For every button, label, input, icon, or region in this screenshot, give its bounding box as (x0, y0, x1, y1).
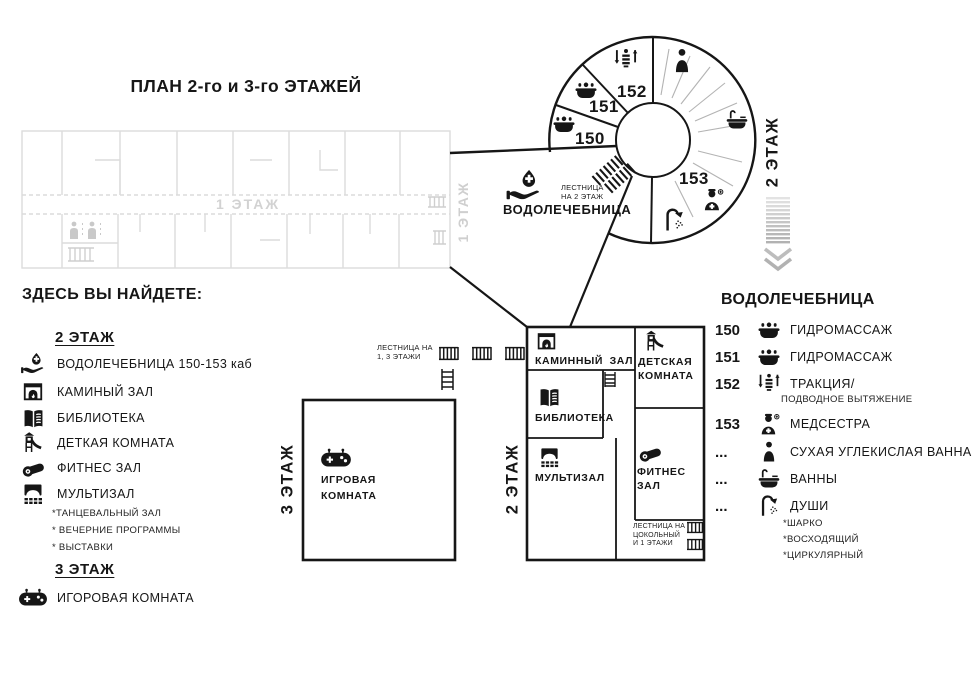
legend-item-kids: ДЕТКАЯ КОМНАТА (18, 431, 174, 455)
stairs13-line1: ЛЕСТНИЦА НА (377, 343, 433, 352)
page-title: ПЛАН 2-го и 3-го ЭТАЖЕЙ (96, 76, 396, 97)
legend-item-label: ВОДОЛЕЧЕБНИЦА 150-153 каб (57, 357, 252, 371)
multihall-label: МУЛЬТИЗАЛ (535, 471, 605, 485)
stairs-note-13: ЛЕСТНИЦА НА 1, 3 ЭТАЖИ (377, 343, 433, 361)
legend-row-153: 153 МЕДСЕСТРА (715, 412, 870, 436)
stairs-icon (439, 347, 524, 390)
legend-row-label: ГИДРОМАССАЖ (790, 350, 893, 364)
legend-left-header: ЗДЕСЬ ВЫ НАЙДЕТЕ: (22, 286, 203, 304)
book-icon (537, 385, 562, 410)
room-number: 151 (715, 349, 748, 366)
bath-icon (754, 466, 784, 492)
screen-icon (538, 446, 561, 469)
legend-right-header: ВОДОЛЕЧЕБНИЦА (721, 291, 875, 309)
floor-plan-poster: ПЛАН 2-го и 3-го ЭТАЖЕЙ 1 ЭТАЖ 1 ЭТАЖ 15… (0, 0, 980, 691)
legend-row-150: 150 ГИДРОМАССАЖ (715, 318, 893, 342)
shower-note: *ЦИРКУЛЯРНЫЙ (783, 550, 863, 561)
hydro-tub-icon (754, 344, 784, 370)
multihall-note: * ВЕЧЕРНИЕ ПРОГРАММЫ (52, 525, 180, 536)
legend-row-151: 151 ГИДРОМАССАЖ (715, 345, 893, 369)
hydro-tub-icon (551, 111, 577, 137)
legend-item-game-room: ИГОРОВАЯ КОМНАТА (18, 586, 194, 610)
floor1-corridor-label: 1 ЭТАЖ (206, 196, 290, 212)
legend-item-label: ДЕТКАЯ КОМНАТА (57, 436, 174, 450)
floor3-side-label: 3 ЭТАЖ (279, 444, 298, 514)
gamepad-icon (18, 587, 48, 609)
library-label: БИБЛИОТЕКА (535, 411, 614, 425)
gamepad-icon (320, 447, 352, 470)
room-number: 152 (715, 376, 748, 393)
ladder-icon (605, 372, 615, 387)
floor1-side-label: 1 ЭТАЖ (455, 181, 471, 242)
legend-row-152: 152 ТРАКЦИЯ/ (715, 372, 855, 396)
legend-row-label: ГИДРОМАССАЖ (790, 323, 893, 337)
stairs-note-2floor: ЛЕСТНИЦА НА 2 ЭТАЖ (561, 183, 604, 201)
mat-icon (637, 440, 664, 467)
room-number-150: 150 (575, 129, 605, 149)
hydrotherapy-label: ВОДОЛЕЧЕБНИЦА (503, 202, 631, 217)
link-line-plan (450, 267, 527, 327)
legend-item-fitness: ФИТНЕС ЗАЛ (18, 456, 141, 480)
stairs13-line2: 1, 3 ЭТАЖИ (377, 352, 433, 361)
floor2-side-label: 2 ЭТАЖ (504, 444, 523, 514)
stairs-note-line2: НА 2 ЭТАЖ (561, 192, 604, 201)
shower-icon (660, 206, 688, 234)
room-number-153: 153 (679, 169, 709, 189)
game-room-line1: ИГРОВАЯ (321, 473, 377, 489)
room-number-152: 152 (617, 82, 647, 102)
screen-icon (18, 482, 48, 506)
fireplace-icon (536, 331, 557, 352)
row-marker: ... (715, 444, 748, 461)
game-room-label: ИГРОВАЯ КОМНАТА (321, 473, 377, 504)
legend-item-label: МУЛЬТИЗАЛ (57, 487, 135, 501)
stairs-note-basement: ЛЕСТНИЦА НА ЦОКОЛЬНЫЙ И 1 ЭТАЖИ (633, 523, 685, 549)
person-icon (668, 46, 696, 76)
legend-row-label: МЕДСЕСТРА (790, 417, 870, 431)
nurse-icon (754, 412, 784, 437)
hydro-tub-icon (573, 77, 599, 103)
legend-row-label: ТРАКЦИЯ/ (790, 377, 855, 391)
hydro-tub-icon (754, 317, 784, 343)
traction-icon (612, 46, 640, 74)
water-hand-icon (18, 351, 48, 377)
fitness-label: ФИТНЕС ЗАЛ (637, 465, 686, 493)
legend-row-label: СУХАЯ УГЛЕКИСЛАЯ ВАННА (790, 445, 972, 459)
slide-icon (643, 329, 667, 354)
stairs-note-line1: ЛЕСТНИЦА (561, 183, 604, 192)
shower-note: *ВОСХОДЯЩИЙ (783, 534, 859, 545)
multihall-note: * ВЫСТАВКИ (52, 542, 113, 553)
kids-room-label: ДЕТСКАЯ КОМНАТА (638, 355, 694, 383)
legend-item-label: ФИТНЕС ЗАЛ (57, 461, 141, 475)
legend-item-label: КАМИНЫЙ ЗАЛ (57, 385, 153, 399)
person-icon (754, 439, 784, 465)
bath-icon (724, 107, 750, 133)
fitness-line2: ЗАЛ (637, 479, 686, 493)
fireplace-hall-label: КАМИННЫЙ ЗАЛ (535, 354, 633, 368)
kids-room-line1: ДЕТСКАЯ (638, 355, 694, 369)
legend-item-hydrotherapy: ВОДОЛЕЧЕБНИЦА 150-153 каб (18, 352, 252, 376)
fitness-line1: ФИТНЕС (637, 465, 686, 479)
nurse-icon (700, 187, 726, 213)
legend-row-baths: ... ВАННЫ (715, 467, 837, 491)
room-number: 153 (715, 416, 748, 433)
book-icon (18, 406, 48, 431)
game-room-line2: КОМНАТА (321, 489, 377, 505)
shower-icon (754, 493, 784, 519)
legend-row-label: ВАННЫ (790, 472, 837, 486)
shower-note: *ШАРКО (783, 518, 823, 529)
stairs-icon (687, 522, 703, 550)
row-marker: ... (715, 471, 748, 488)
legend-floor2-header: 2 ЭТАЖ (55, 329, 114, 346)
fireplace-icon (18, 381, 48, 403)
kids-room-line2: КОМНАТА (638, 369, 694, 383)
stairs-basement-line3: И 1 ЭТАЖИ (633, 540, 685, 549)
room-number: 150 (715, 322, 748, 339)
multihall-note: *ТАНЦЕВАЛЬНЫЙ ЗАЛ (52, 508, 161, 519)
legend-row-dry-bath: ... СУХАЯ УГЛЕКИСЛАЯ ВАННА (715, 440, 972, 464)
legend-item-label: ИГОРОВАЯ КОМНАТА (57, 591, 194, 605)
legend-item-multihall: МУЛЬТИЗАЛ (18, 482, 135, 506)
traction-icon (754, 371, 784, 397)
legend-row-label: ДУШИ (790, 499, 829, 513)
traction-sub-label: ПОДВОДНОЕ ВЫТЯЖЕНИЕ (781, 394, 912, 405)
legend-item-library: БИБЛИОТЕКА (18, 406, 145, 430)
slide-icon (18, 431, 48, 455)
mat-icon (18, 455, 48, 482)
legend-floor3-header: 3 ЭТАЖ (55, 561, 114, 578)
legend-row-showers: ... ДУШИ (715, 494, 829, 518)
stairs-basement-line1: ЛЕСТНИЦА НА (633, 523, 685, 532)
circle-floor-label: 2 ЭТАЖ (764, 117, 783, 187)
legend-item-fireplace: КАМИНЫЙ ЗАЛ (18, 380, 153, 404)
wc-icon (70, 222, 101, 239)
stairs-basement-line2: ЦОКОЛЬНЫЙ (633, 532, 685, 541)
row-marker: ... (715, 498, 748, 515)
down-arrow-icon (765, 197, 791, 269)
circle-inner-wall (616, 103, 690, 177)
water-hand-icon (505, 167, 543, 205)
legend-item-label: БИБЛИОТЕКА (57, 411, 145, 425)
